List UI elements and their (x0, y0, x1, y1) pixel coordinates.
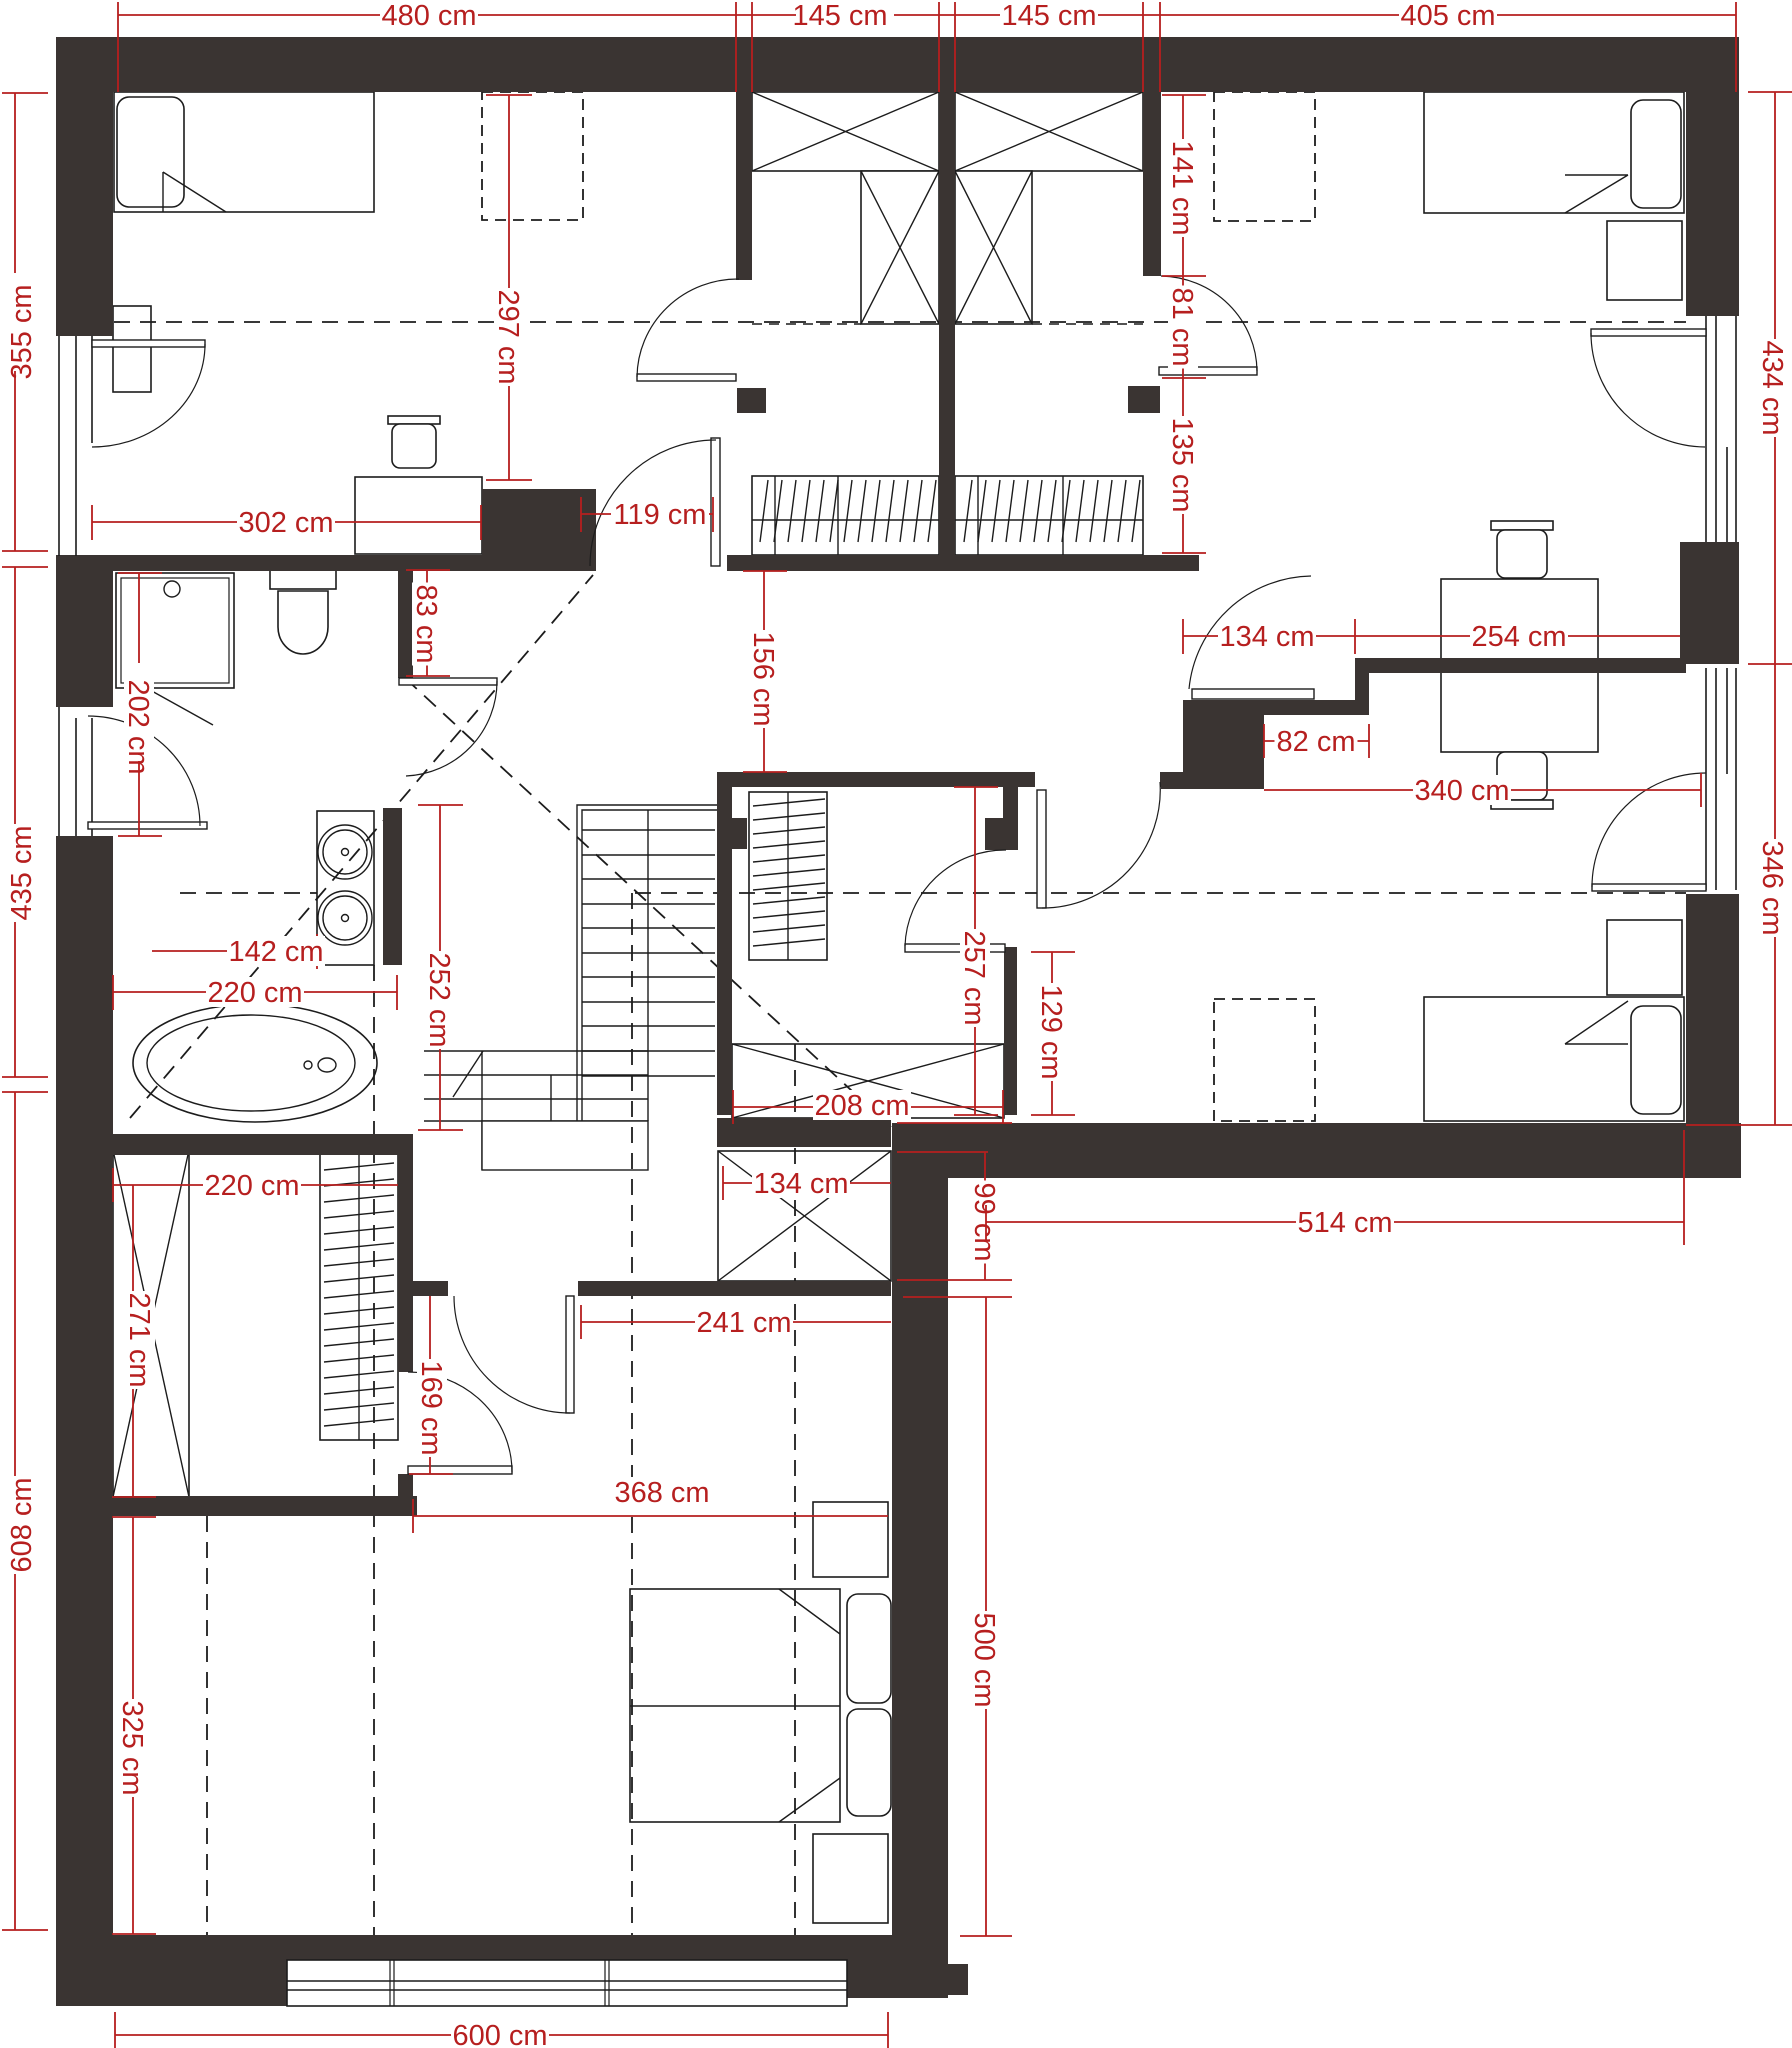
svg-text:435 cm: 435 cm (6, 825, 38, 920)
svg-text:252 cm: 252 cm (423, 952, 455, 1047)
svg-text:83 cm: 83 cm (410, 585, 442, 664)
svg-text:608 cm: 608 cm (6, 1477, 38, 1572)
svg-text:434 cm: 434 cm (1756, 340, 1788, 435)
svg-text:346 cm: 346 cm (1756, 840, 1788, 935)
svg-text:297 cm: 297 cm (492, 289, 524, 384)
svg-text:514 cm: 514 cm (1297, 1207, 1392, 1239)
svg-text:145 cm: 145 cm (1001, 0, 1096, 32)
svg-text:600 cm: 600 cm (452, 2020, 547, 2048)
svg-text:119 cm: 119 cm (614, 499, 707, 531)
svg-text:142 cm: 142 cm (228, 936, 323, 968)
svg-text:257 cm: 257 cm (958, 930, 990, 1025)
svg-text:500 cm: 500 cm (968, 1612, 1000, 1707)
svg-text:241 cm: 241 cm (696, 1307, 791, 1339)
svg-text:368 cm: 368 cm (614, 1477, 709, 1509)
svg-text:202 cm: 202 cm (122, 679, 154, 774)
svg-text:169 cm: 169 cm (415, 1360, 447, 1455)
svg-text:135 cm: 135 cm (1166, 417, 1198, 512)
svg-text:220 cm: 220 cm (204, 1170, 299, 1202)
svg-text:325 cm: 325 cm (116, 1700, 148, 1795)
svg-text:208 cm: 208 cm (814, 1090, 909, 1122)
svg-text:405 cm: 405 cm (1400, 0, 1495, 32)
svg-text:220 cm: 220 cm (207, 977, 302, 1009)
svg-text:480 cm: 480 cm (381, 0, 476, 32)
svg-text:340 cm: 340 cm (1414, 775, 1509, 807)
svg-text:145 cm: 145 cm (792, 0, 887, 32)
svg-text:156 cm: 156 cm (747, 631, 779, 726)
svg-text:134 cm: 134 cm (1219, 621, 1314, 653)
svg-text:134 cm: 134 cm (753, 1168, 848, 1200)
svg-text:82 cm: 82 cm (1277, 726, 1356, 758)
svg-text:141 cm: 141 cm (1166, 140, 1198, 235)
svg-text:355 cm: 355 cm (6, 284, 38, 379)
svg-text:129 cm: 129 cm (1035, 984, 1067, 1079)
svg-text:271 cm: 271 cm (123, 1292, 155, 1387)
svg-text:81 cm: 81 cm (1166, 288, 1198, 367)
svg-text:302 cm: 302 cm (238, 507, 333, 539)
svg-text:254 cm: 254 cm (1471, 621, 1566, 653)
